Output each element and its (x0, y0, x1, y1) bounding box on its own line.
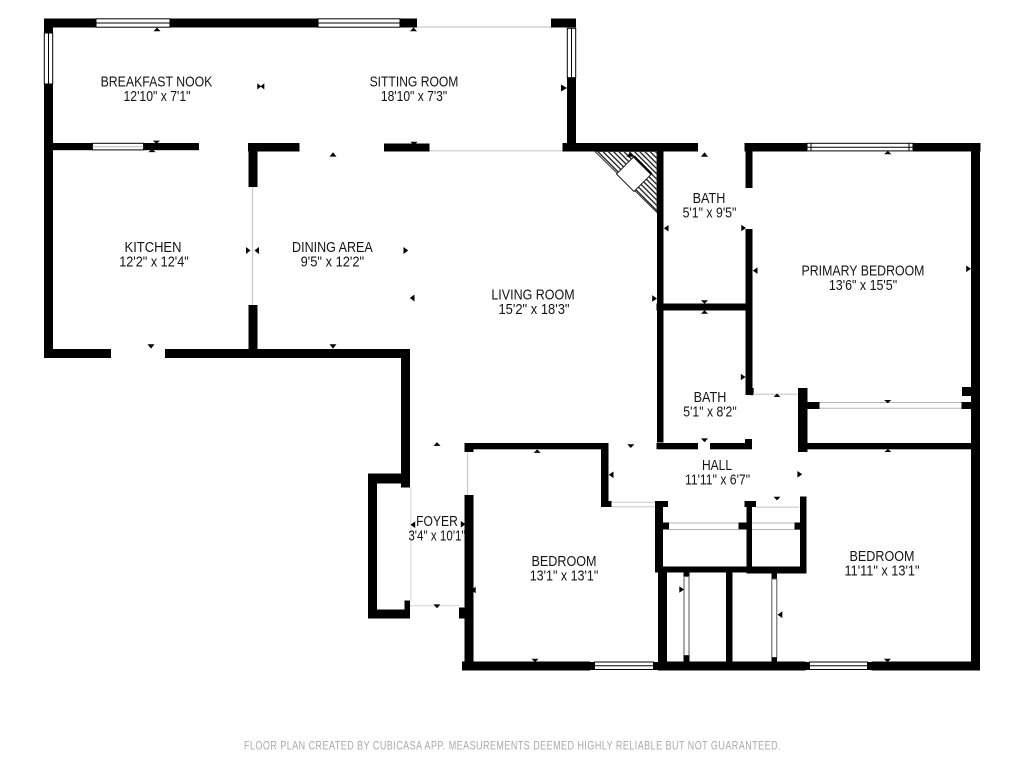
svg-text:11'11" x 6'7": 11'11" x 6'7" (685, 473, 750, 489)
svg-text:3'4" x 10'1": 3'4" x 10'1" (408, 529, 465, 545)
svg-text:13'6" x 15'5": 13'6" x 15'5" (829, 278, 897, 294)
svg-text:18'10" x 7'3": 18'10" x 7'3" (381, 89, 447, 105)
svg-text:5'1" x 8'2": 5'1" x 8'2" (683, 405, 736, 421)
svg-text:13'1" x 13'1": 13'1" x 13'1" (530, 568, 599, 584)
svg-text:FLOOR PLAN CREATED BY CUBICASA: FLOOR PLAN CREATED BY CUBICASA APP. MEAS… (244, 740, 781, 753)
svg-text:12'2" x 12'4": 12'2" x 12'4" (119, 254, 189, 270)
svg-text:12'10" x 7'1": 12'10" x 7'1" (124, 89, 191, 105)
svg-text:9'5" x 12'2": 9'5" x 12'2" (301, 254, 365, 270)
svg-text:11'11" x 13'1": 11'11" x 13'1" (845, 564, 920, 580)
svg-text:15'2" x 18'3": 15'2" x 18'3" (498, 302, 569, 318)
svg-text:5'1" x 9'5": 5'1" x 9'5" (683, 205, 737, 221)
